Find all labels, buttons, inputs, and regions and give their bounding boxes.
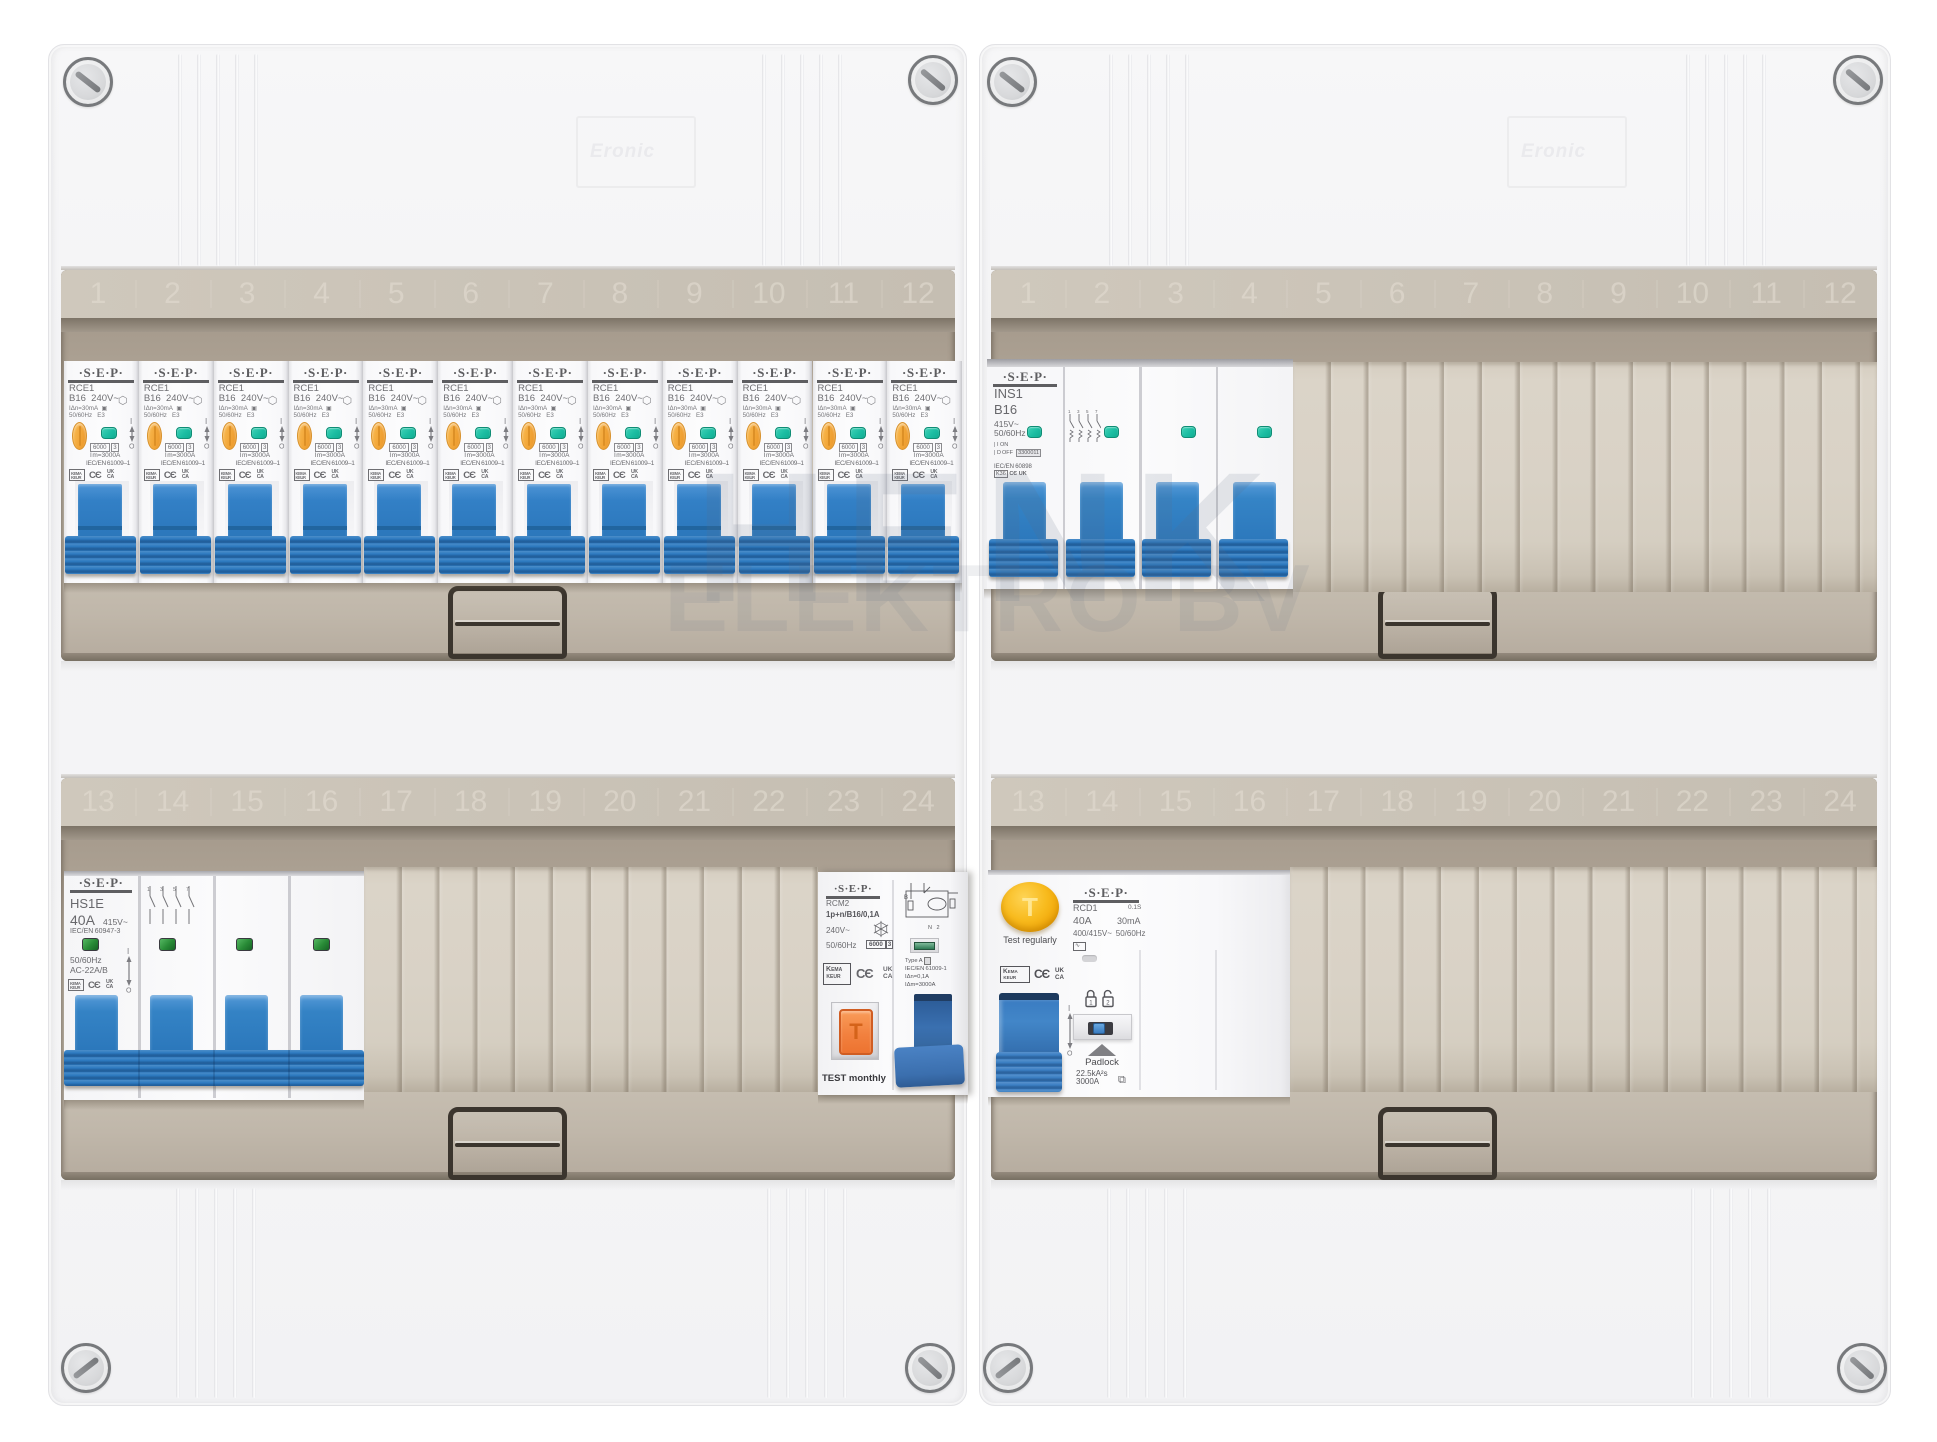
svg-text:I: I [429,417,431,426]
svg-text:I: I [953,417,955,426]
svg-text:1: 1 [1089,1001,1093,1007]
svg-text:I: I [355,417,357,426]
svg-text:5: 5 [1086,409,1089,414]
svg-text:I: I [504,417,506,426]
svg-text:O: O [1067,1051,1073,1057]
svg-text:3: 3 [160,887,163,893]
svg-text:I: I [879,417,881,426]
svg-text:1: 1 [1068,409,1071,414]
svg-text:O: O [126,988,132,994]
svg-text:I: I [729,417,731,426]
svg-text:I: I [127,947,129,956]
svg-text:N 2: N 2 [928,925,940,931]
svg-text:2: 2 [1106,1001,1110,1007]
svg-text:I: I [280,417,282,426]
svg-text:5: 5 [173,887,176,893]
svg-text:I: I [205,417,207,426]
svg-text:I: I [130,417,132,426]
svg-text:I: I [579,417,581,426]
svg-text:7: 7 [186,887,189,893]
svg-text:I: I [804,417,806,426]
svg-text:I: I [654,417,656,426]
svg-text:7: 7 [1095,409,1098,414]
svg-text:1: 1 [147,887,150,893]
svg-text:B: B [904,895,908,901]
svg-text:I: I [1068,1004,1070,1013]
svg-text:3: 3 [1077,409,1080,414]
